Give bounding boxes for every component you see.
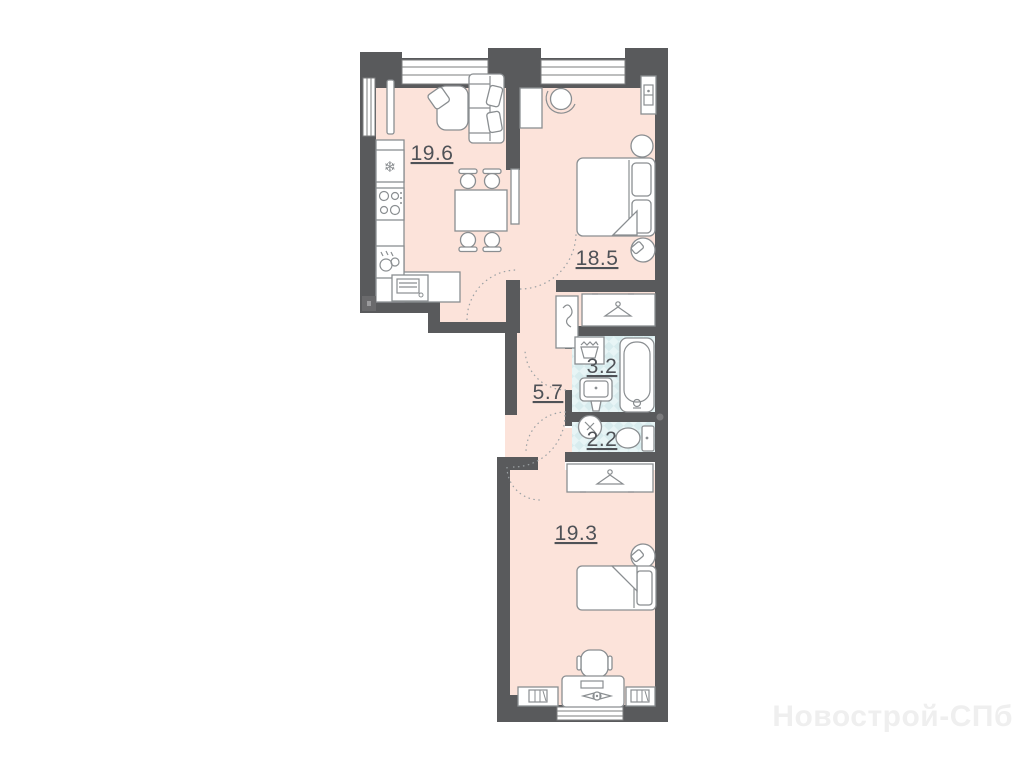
room-fill-passage [520, 280, 556, 292]
dressing-table [641, 76, 656, 114]
desk-lamp [631, 544, 655, 568]
double-bed [577, 158, 655, 236]
window-left [363, 78, 375, 136]
room-label-toilet: 2.2 [587, 428, 618, 451]
interior-door-leaf [511, 169, 519, 224]
floorplan-svg: ❄ [0, 0, 1023, 768]
watermark: Новострой-СПб [772, 700, 1013, 734]
oven-icon [392, 275, 428, 301]
wardrobe-cabinet [520, 88, 542, 128]
bathtub [620, 338, 654, 412]
room-label-bedroom: 18.5 [576, 247, 619, 270]
room-label-bathroom: 3.2 [587, 355, 618, 378]
pillow [632, 163, 651, 196]
desk-chair [581, 650, 608, 677]
kitchen-sink-icon [376, 246, 404, 278]
floor-lamp [631, 238, 655, 262]
svg-text:❄: ❄ [384, 158, 397, 176]
door-gap-entrance [505, 415, 517, 457]
sofa [469, 74, 504, 143]
dining-chair [459, 169, 477, 189]
bookshelf-right [626, 687, 655, 706]
book-icon [631, 690, 649, 702]
dining-chair [483, 233, 501, 252]
window-bottom [557, 707, 623, 720]
hall-closet [582, 294, 655, 326]
dining-chair [483, 169, 501, 189]
door-gap-bathroom [565, 349, 572, 390]
room-label-living-kitchen: 19.6 [411, 142, 454, 165]
dining-chair [459, 233, 477, 252]
column-block [362, 296, 376, 311]
floorplan-page: ❄ [0, 0, 1023, 768]
room-label-bedroom2: 19.3 [555, 522, 598, 545]
stove-icon [376, 188, 404, 220]
single-bed [577, 566, 656, 610]
door-gap-bedroom2 [538, 457, 565, 470]
pillow [637, 571, 652, 605]
pouf [631, 135, 653, 157]
balcony-door-leaf [387, 80, 394, 134]
room-label-hallway: 5.7 [533, 381, 564, 404]
door-gap-toilet [565, 428, 572, 452]
window-top-right [541, 60, 625, 84]
bookshelf-left [518, 687, 558, 706]
wardrobe [567, 464, 653, 492]
wall-dot [657, 414, 664, 421]
fridge-icon: ❄ [376, 150, 404, 182]
book-icon [529, 690, 547, 702]
